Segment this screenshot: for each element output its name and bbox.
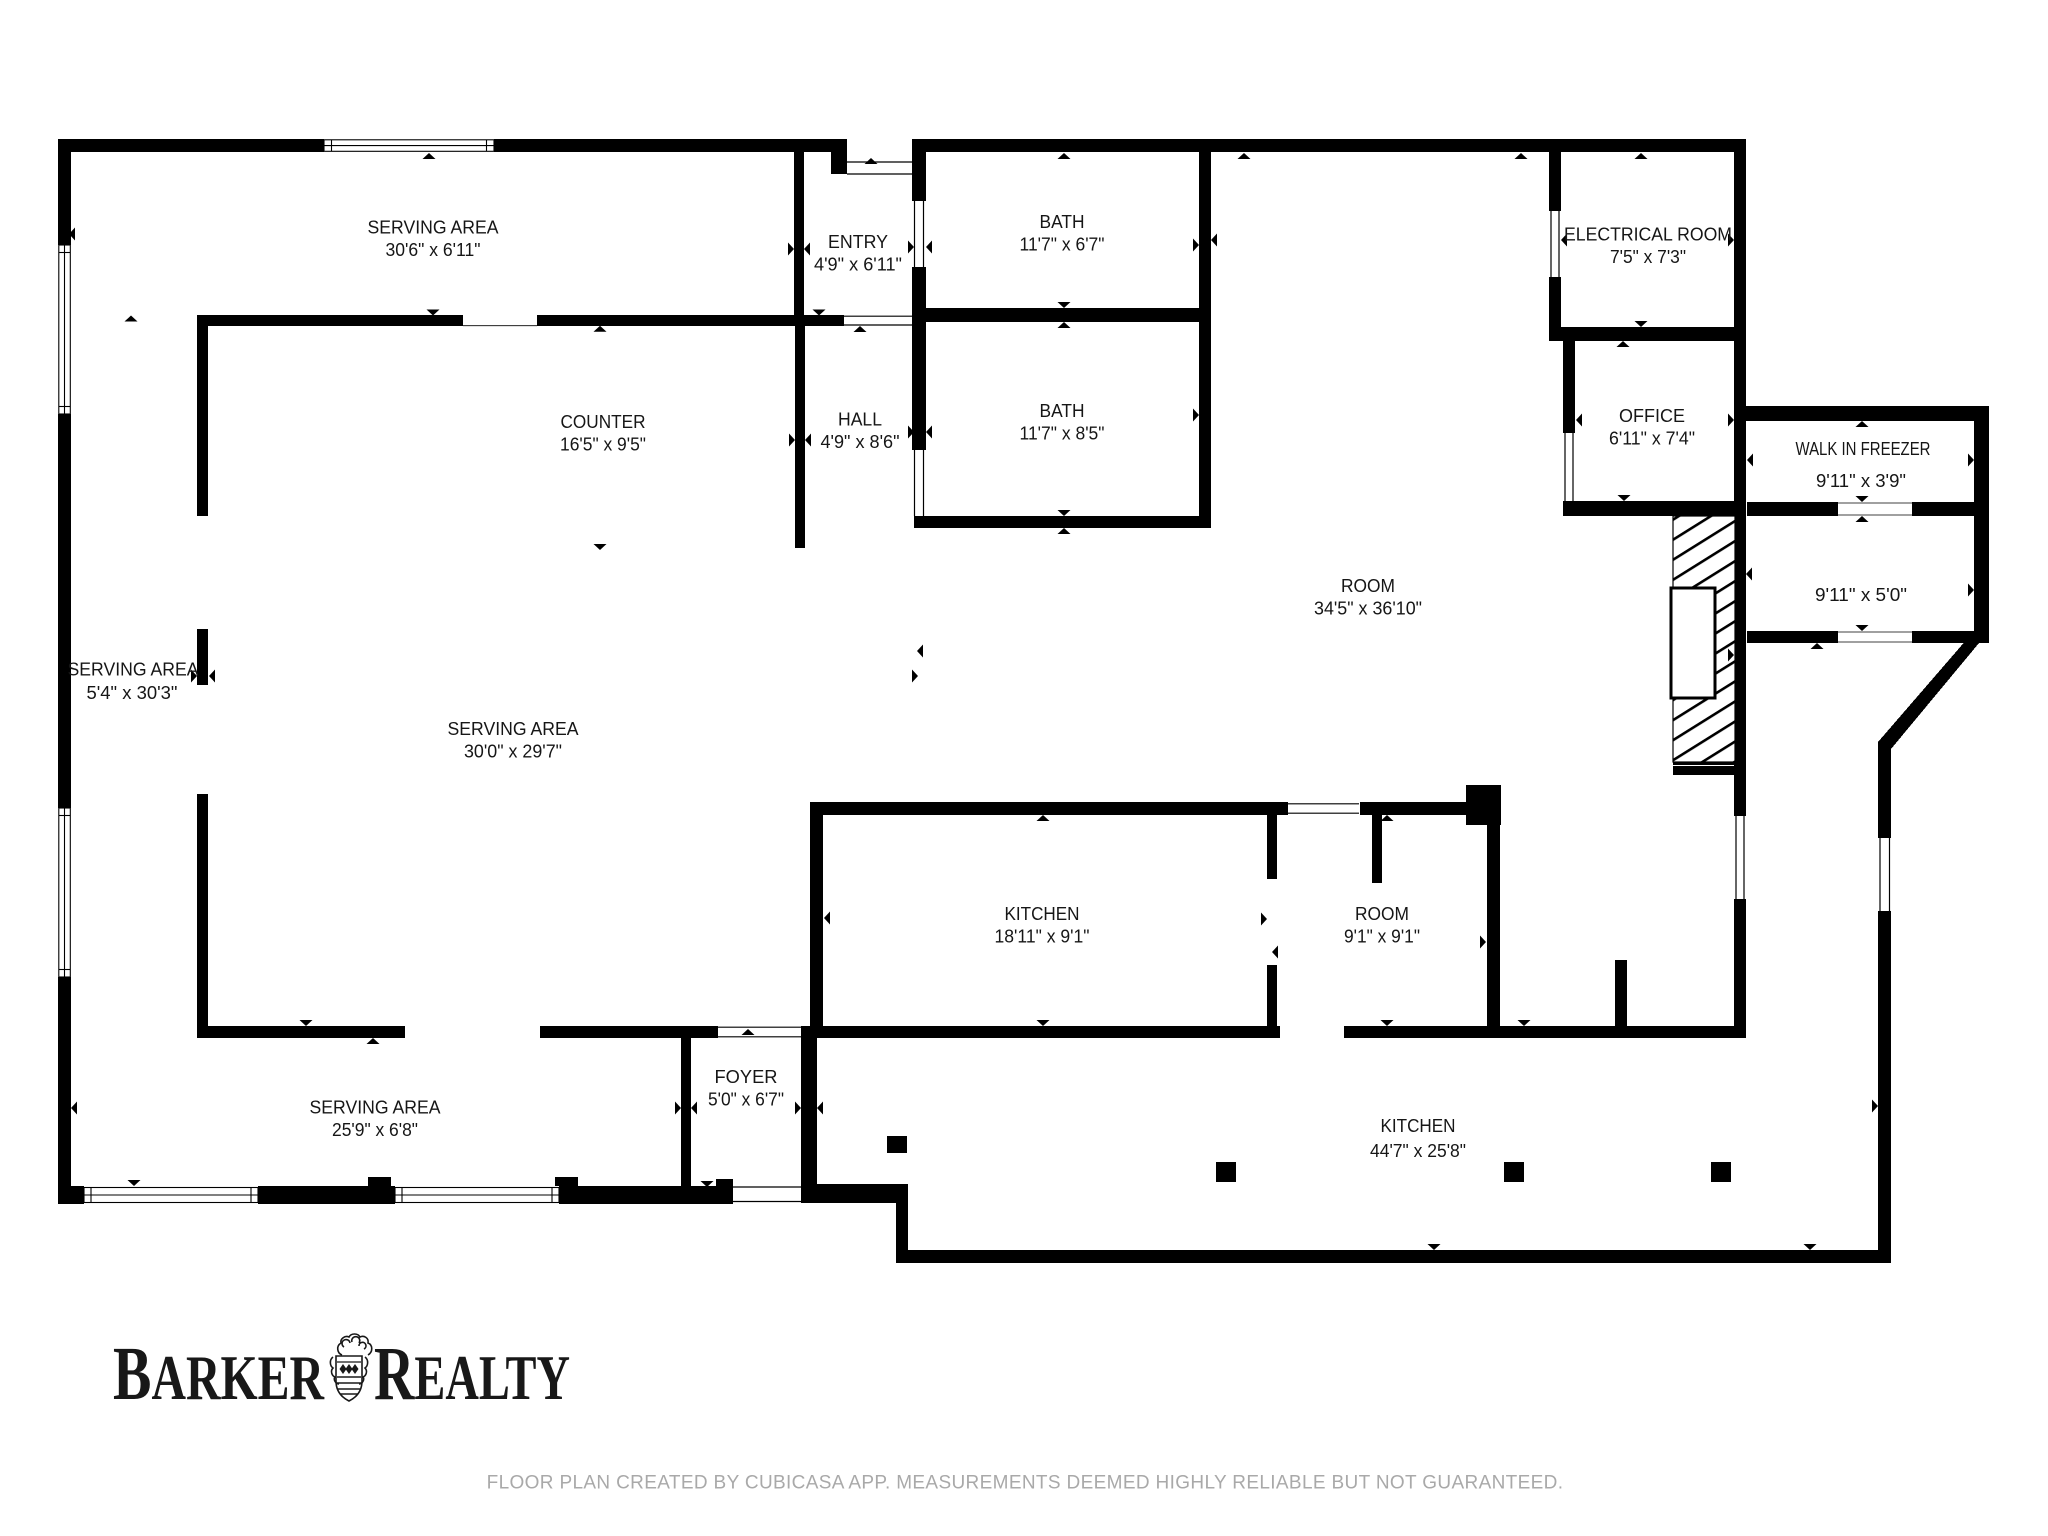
svg-text:16'5" x 9'5": 16'5" x 9'5"	[560, 434, 646, 455]
svg-text:30'0" x 29'7": 30'0" x 29'7"	[464, 741, 562, 762]
svg-text:ROOM: ROOM	[1341, 575, 1395, 596]
svg-text:7'5" x 7'3": 7'5" x 7'3"	[1610, 246, 1686, 267]
svg-text:HALL: HALL	[838, 409, 882, 430]
svg-text:COUNTER: COUNTER	[561, 411, 646, 432]
svg-text:SERVING AREA: SERVING AREA	[68, 659, 200, 680]
svg-text:25'9" x 6'8": 25'9" x 6'8"	[332, 1119, 418, 1140]
svg-text:FLOOR PLAN CREATED BY CUBICASA: FLOOR PLAN CREATED BY CUBICASA APP. MEAS…	[487, 1473, 1564, 1494]
svg-text:KITCHEN: KITCHEN	[1005, 903, 1080, 924]
svg-text:4'9" x 8'6": 4'9" x 8'6"	[821, 431, 900, 452]
svg-text:BATH: BATH	[1040, 211, 1085, 232]
svg-text:9'11" x 3'9": 9'11" x 3'9"	[1816, 470, 1906, 491]
svg-text:9'11" x 5'0": 9'11" x 5'0"	[1815, 584, 1907, 605]
svg-text:9'1" x 9'1": 9'1" x 9'1"	[1344, 926, 1420, 947]
svg-text:11'7" x 6'7": 11'7" x 6'7"	[1020, 234, 1105, 255]
svg-text:KITCHEN: KITCHEN	[1381, 1115, 1456, 1136]
svg-text:44'7" x 25'8": 44'7" x 25'8"	[1370, 1140, 1466, 1161]
svg-text:11'7" x 8'5": 11'7" x 8'5"	[1020, 423, 1105, 444]
svg-text:34'5" x 36'10": 34'5" x 36'10"	[1314, 598, 1422, 619]
svg-text:SERVING AREA: SERVING AREA	[448, 718, 580, 739]
svg-text:OFFICE: OFFICE	[1619, 405, 1685, 426]
svg-text:4'9" x 6'11": 4'9" x 6'11"	[814, 254, 902, 275]
svg-text:REALTY: REALTY	[374, 1332, 570, 1416]
svg-text:6'11" x 7'4": 6'11" x 7'4"	[1609, 428, 1695, 449]
svg-text:FOYER: FOYER	[715, 1066, 778, 1087]
svg-text:SERVING AREA: SERVING AREA	[310, 1097, 442, 1118]
svg-text:BARKER: BARKER	[113, 1332, 325, 1416]
svg-text:ROOM: ROOM	[1355, 903, 1409, 924]
svg-text:5'4" x 30'3": 5'4" x 30'3"	[87, 682, 178, 703]
svg-text:5'0" x 6'7": 5'0" x 6'7"	[708, 1089, 784, 1110]
svg-text:WALK IN FREEZER: WALK IN FREEZER	[1796, 438, 1931, 459]
svg-text:30'6" x 6'11": 30'6" x 6'11"	[386, 239, 481, 260]
svg-text:ELECTRICAL ROOM: ELECTRICAL ROOM	[1564, 224, 1732, 245]
svg-text:SERVING AREA: SERVING AREA	[368, 217, 500, 238]
svg-text:ENTRY: ENTRY	[828, 231, 888, 252]
svg-text:18'11" x 9'1": 18'11" x 9'1"	[995, 926, 1090, 947]
svg-text:BATH: BATH	[1040, 400, 1085, 421]
